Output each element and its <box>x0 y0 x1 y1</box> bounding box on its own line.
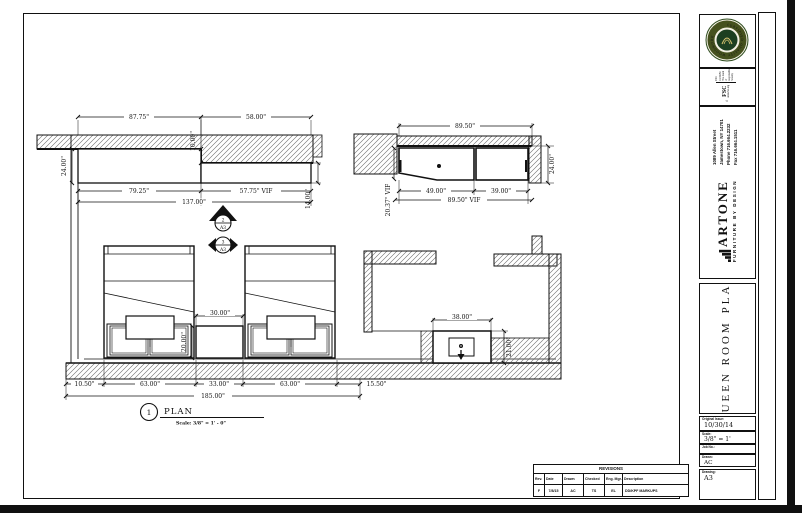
dim-label: 24.00" <box>549 154 556 174</box>
dim-label: 21.00" <box>506 337 513 357</box>
page-bottom-edge <box>0 505 802 513</box>
brand-tagline: FURNITURE BY DESIGN <box>732 180 737 262</box>
dim-label: 10.50" <box>75 381 95 388</box>
brand-name: ARTONE <box>715 180 731 247</box>
certified-seal-box: CERTIFIED QUALITY WOODWORK <box>699 14 756 68</box>
dim-label: 20.37" VIF <box>385 184 392 217</box>
drawing-title-line2: PLAN <box>720 283 732 313</box>
dim-label: 33.00" <box>209 381 229 388</box>
elevation-marker-sheet: A3 <box>219 225 226 231</box>
address-line: Fax 716.664.1511 <box>733 119 740 165</box>
callout-number: 1 <box>147 408 152 417</box>
job-no-label: Job No.: <box>702 446 753 450</box>
company-address: 1089 Allen Street Jamestown, NY 14701 Ph… <box>712 119 739 165</box>
fsc-tree-icon <box>721 100 732 102</box>
revisions-header-row: Rev. Date Drawn Checked Eng. Mgr. Descri… <box>534 474 688 485</box>
revisions-table: REVISIONS Rev. Date Drawn Checked Eng. M… <box>533 464 689 497</box>
brand-address-box: ARTONE FURNITURE BY DESIGN 1089 Allen St… <box>699 106 756 279</box>
job-no-field: Job No.: <box>699 444 756 454</box>
revisions-col-header: Checked <box>584 474 605 485</box>
revision-date: 7/8/15 <box>545 485 563 497</box>
revision-rev: F <box>534 485 545 497</box>
drawing-title-line1: QUEEN ROOM <box>720 320 732 414</box>
bed-2-pillow-shelf <box>267 316 315 339</box>
nightstand <box>196 326 243 358</box>
fsc-box: FSC www.fsc.org FSC C134159 The mark of … <box>699 68 756 106</box>
floor-plan: 30.00" 20.00" 38.00" <box>66 236 561 400</box>
dim-label: 15.50" <box>367 381 387 388</box>
dim-label: 24.00" <box>61 156 68 176</box>
dim-label: 89.50" <box>455 123 475 130</box>
drawn-value: AC <box>702 460 753 467</box>
drawing-number-value: A3 <box>702 475 753 482</box>
dim-label: 20.00" <box>181 332 188 352</box>
elevation-marker-number: 2 <box>222 218 225 224</box>
address-line: Jamestown, NY 14701 <box>719 119 726 165</box>
artone-logo-icon <box>719 249 731 262</box>
elevation-marker-sheet: A3 <box>219 247 226 253</box>
plan-callout: 1 PLAN Scale: 3/8" = 1' - 0" <box>141 404 265 427</box>
page-right-edge <box>787 0 795 513</box>
brand-logo: ARTONE FURNITURE BY DESIGN <box>715 165 737 277</box>
plan-drawing-canvas: 87.75" 58.00" 10.00" 24.00" 14.00" 79.25… <box>24 14 678 497</box>
fsc-url: www.fsc.org <box>728 85 731 98</box>
elevation-marker-up: 2 A3 <box>209 205 237 231</box>
dim-label: 10.00" <box>190 131 197 151</box>
credenza-left-unit <box>399 148 474 180</box>
dim-label: 137.00" <box>182 199 206 206</box>
soffit-right-panel <box>201 163 311 183</box>
dim-label: 63.00" <box>140 381 160 388</box>
certified-woodwork-seal: CERTIFIED QUALITY WOODWORK <box>700 15 754 66</box>
drawing-title-box: QUEEN ROOM PLAN <box>699 283 756 414</box>
original-issue-field: Original Issue: 10/30/14 <box>699 416 756 431</box>
elevation-marker-side: 3 A3 <box>208 237 238 253</box>
dim-label: 58.00" <box>246 114 266 121</box>
address-line: Phone 716.664.2232 <box>726 119 733 165</box>
dim-label: 63.00" <box>280 381 300 388</box>
address-line: 1089 Allen Street <box>712 119 719 165</box>
revision-description: DD/KPF MARKUPS <box>623 485 688 497</box>
revisions-col-header: Drawn <box>563 474 584 485</box>
fsc-tagline: The mark of responsible forestry <box>723 69 736 81</box>
grommet-dot <box>437 164 441 168</box>
dim-label: 79.25" <box>129 188 149 195</box>
revisions-title: REVISIONS <box>534 465 688 474</box>
drawn-field: Drawn: AC <box>699 454 756 467</box>
title-block-margin-column <box>758 12 776 500</box>
sheet-page: { "title_block": { "seal_text": "CERTIFI… <box>0 0 802 520</box>
dim-label: 87.75" <box>129 114 149 121</box>
dim-label: 38.00" <box>452 314 472 321</box>
revision-checked: TS <box>584 485 605 497</box>
plan-bottom-wall <box>66 363 561 379</box>
revision-eng-mgr: EL <box>605 485 623 497</box>
revisions-col-header: Date <box>545 474 563 485</box>
scale-value: 3/8" = 1' <box>702 437 753 444</box>
scale-field: Scale: 3/8" = 1' <box>699 431 756 444</box>
drawing-number-field: Drawing: A3 <box>699 469 756 500</box>
original-issue-value: 10/30/14 <box>702 422 753 429</box>
callout-title: PLAN <box>164 407 193 417</box>
revisions-data-row: F 7/8/15 AC TS EL DD/KPF MARKUPS <box>534 485 688 497</box>
credenza-elevation: 89.50" 49.00" 39.00" 89.50" VIF 24.00" 2… <box>354 123 556 217</box>
dim-label: 39.00" <box>491 188 511 195</box>
dim-label: 57.75" VIF <box>240 188 273 195</box>
soffit-left-panel <box>78 149 201 183</box>
drawing-frame: 87.75" 58.00" 10.00" 24.00" 14.00" 79.25… <box>23 13 680 499</box>
callout-scale-note: Scale: 3/8" = 1' - 0" <box>176 421 226 427</box>
dim-label: 89.50" VIF <box>448 197 481 204</box>
bed-2 <box>245 246 335 358</box>
revision-drawn: AC <box>563 485 584 497</box>
dim-label: 49.00" <box>426 188 446 195</box>
revisions-col-header: Rev. <box>534 474 545 485</box>
dim-label: 185.00" <box>201 393 225 400</box>
elevation-marker-number: 3 <box>222 240 225 246</box>
credenza-right-unit <box>476 148 528 180</box>
bed-1-pillow-shelf <box>126 316 174 339</box>
revisions-col-header: Description <box>623 474 688 485</box>
revisions-col-header: Eng. Mgr. <box>605 474 623 485</box>
vanity-counter <box>433 331 491 363</box>
dim-label: 30.00" <box>210 310 230 317</box>
